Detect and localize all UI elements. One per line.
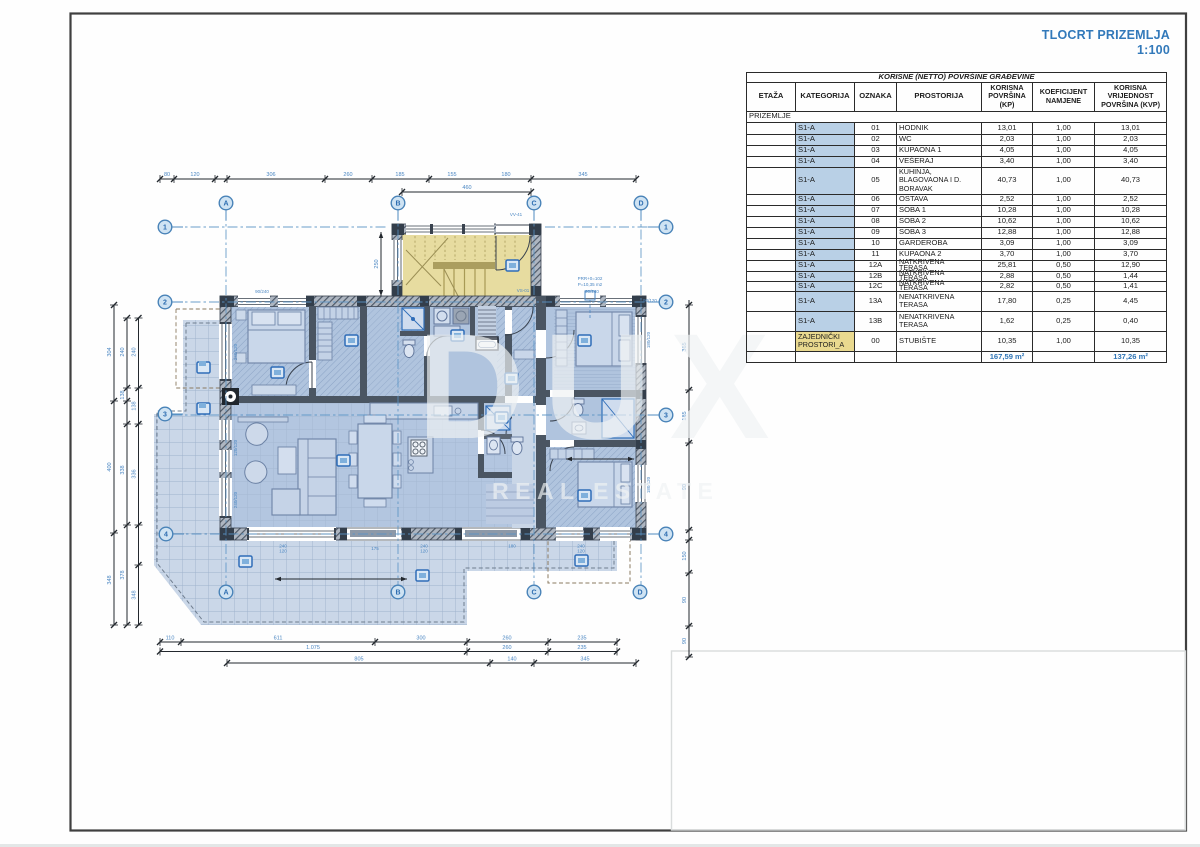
svg-text:D: D bbox=[637, 590, 642, 597]
svg-text:D: D bbox=[638, 201, 643, 208]
svg-text:460: 460 bbox=[462, 185, 471, 191]
svg-text:155: 155 bbox=[447, 172, 456, 178]
svg-text:1: 1 bbox=[664, 225, 668, 232]
svg-text:PRR+0=102: PRR+0=102 bbox=[578, 276, 603, 281]
svg-text:180: 180 bbox=[501, 172, 510, 178]
svg-text:400: 400 bbox=[107, 462, 113, 471]
svg-text:120: 120 bbox=[279, 549, 287, 554]
svg-text:VV-41: VV-41 bbox=[510, 212, 523, 217]
svg-text:348: 348 bbox=[132, 590, 138, 599]
svg-text:235: 235 bbox=[577, 645, 586, 651]
svg-text:175: 175 bbox=[371, 546, 379, 551]
svg-text:240/120: 240/120 bbox=[233, 343, 238, 360]
svg-text:150: 150 bbox=[682, 551, 688, 560]
svg-text:140: 140 bbox=[507, 657, 516, 663]
svg-text:VS-01: VS-01 bbox=[517, 288, 530, 293]
svg-text:90: 90 bbox=[682, 597, 688, 603]
svg-text:260: 260 bbox=[343, 172, 352, 178]
svg-text:250: 250 bbox=[374, 259, 380, 268]
svg-text:304: 304 bbox=[107, 347, 113, 356]
svg-text:260: 260 bbox=[502, 636, 511, 642]
svg-text:2: 2 bbox=[163, 300, 167, 307]
svg-text:B: B bbox=[395, 201, 400, 208]
svg-text:378: 378 bbox=[120, 570, 126, 579]
svg-text:REAL ESTATE: REAL ESTATE bbox=[492, 478, 719, 504]
svg-text:3: 3 bbox=[163, 412, 167, 419]
svg-text:240: 240 bbox=[132, 347, 138, 356]
svg-text:B: B bbox=[395, 590, 400, 597]
svg-text:80: 80 bbox=[164, 172, 170, 178]
svg-text:90: 90 bbox=[682, 638, 688, 644]
svg-text:DUX: DUX bbox=[417, 302, 788, 470]
svg-text:138: 138 bbox=[120, 390, 126, 399]
svg-text:345: 345 bbox=[578, 172, 587, 178]
svg-text:240: 240 bbox=[120, 347, 126, 356]
svg-text:138: 138 bbox=[132, 401, 138, 410]
svg-text:345: 345 bbox=[580, 657, 589, 663]
svg-text:185: 185 bbox=[395, 172, 404, 178]
svg-text:336: 336 bbox=[132, 469, 138, 478]
svg-text:805: 805 bbox=[354, 657, 363, 663]
svg-text:4: 4 bbox=[164, 532, 168, 539]
svg-text:120: 120 bbox=[577, 549, 585, 554]
svg-text:611: 611 bbox=[274, 636, 283, 642]
svg-text:C: C bbox=[531, 590, 536, 597]
svg-text:235: 235 bbox=[577, 636, 586, 642]
svg-text:240/120: 240/120 bbox=[233, 491, 238, 508]
svg-text:90/240: 90/240 bbox=[255, 289, 269, 294]
svg-text:348: 348 bbox=[107, 575, 113, 584]
svg-text:306: 306 bbox=[266, 172, 275, 178]
svg-text:338: 338 bbox=[120, 465, 126, 474]
svg-text:4: 4 bbox=[664, 532, 668, 539]
svg-text:1: 1 bbox=[163, 225, 167, 232]
svg-text:110: 110 bbox=[166, 636, 175, 642]
svg-text:A: A bbox=[223, 590, 228, 597]
svg-text:C: C bbox=[531, 201, 536, 208]
svg-text:120/120: 120/120 bbox=[233, 439, 238, 456]
svg-text:300: 300 bbox=[416, 636, 425, 642]
svg-text:A: A bbox=[223, 201, 228, 208]
svg-text:1.075: 1.075 bbox=[306, 645, 320, 651]
svg-text:180: 180 bbox=[508, 544, 516, 549]
svg-text:120: 120 bbox=[190, 172, 199, 178]
svg-text:P=10,35 m2: P=10,35 m2 bbox=[578, 282, 603, 287]
svg-text:260: 260 bbox=[502, 645, 511, 651]
svg-text:120: 120 bbox=[420, 549, 428, 554]
